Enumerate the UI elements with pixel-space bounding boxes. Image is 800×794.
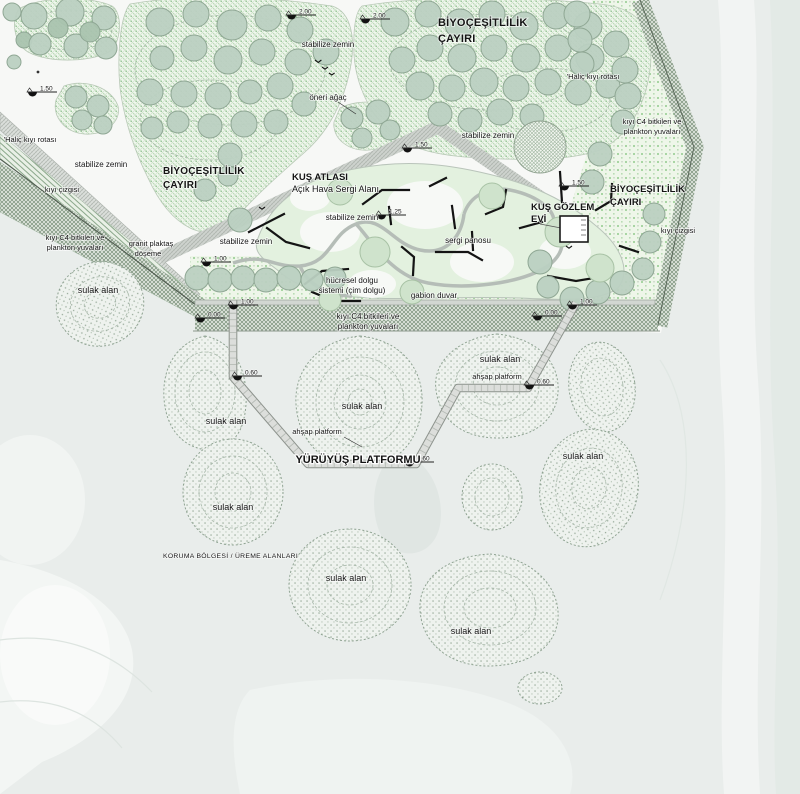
label-oneri-agac: öneri ağaç xyxy=(309,93,346,102)
label-kiyi-c4: kıyı C4 bitkileri ve xyxy=(623,117,682,126)
label-ahsap-platform: ahşap platform xyxy=(292,427,342,436)
elevation-value: 2.00 xyxy=(373,13,386,20)
wetland xyxy=(289,529,411,641)
label-kiyi-c4: plankton yuvaları xyxy=(338,322,398,331)
label-kiyi-cizgisi: kıyı çizgisi xyxy=(45,185,80,194)
elevation-value: 0.00 xyxy=(545,310,558,317)
label-sulak-alan: sulak alan xyxy=(213,502,254,512)
label-hucresel: hücresel dolgu xyxy=(326,276,378,285)
elevation-value: 1.50 xyxy=(415,142,428,149)
label-stabilize-zemin: stabilize zemin xyxy=(220,237,272,246)
label-kiyi-c4: kıyı C4 bitkileri ve xyxy=(337,312,400,321)
label-sulak-alan: sulak alan xyxy=(480,354,521,364)
elevation-value: 1.25 xyxy=(389,209,402,216)
label-stabilize-zemin: stabilize zemin xyxy=(302,40,354,49)
wetland xyxy=(183,439,283,545)
label-kus-gozlem: KUŞ GÖZLEM xyxy=(531,202,594,213)
elevation-value: 1.00 xyxy=(580,299,593,306)
label-meadow: ÇAYIRI xyxy=(438,33,475,45)
label-gabion: gabion duvar xyxy=(411,291,458,300)
label-stabilize-zemin: stabilize zemin xyxy=(462,131,514,140)
elevation-value: 0.60 xyxy=(245,370,258,377)
elevation-value: 1.00 xyxy=(241,299,254,306)
label-granit: döşeme xyxy=(135,249,162,258)
label-sergi-panosu: sergi panosu xyxy=(445,236,491,245)
label-kiyi-cizgisi: kıyı çizgisi xyxy=(661,226,696,235)
label-meadow: BİYOÇEŞİTLİLİK xyxy=(610,184,685,195)
label-meadow: ÇAYIRI xyxy=(163,180,197,191)
hatched-proposal-tree xyxy=(514,121,566,173)
label-kus-atlasi: KUŞ ATLASI xyxy=(292,172,348,183)
label-stabilize-zemin: stabilize zemin xyxy=(326,213,378,222)
label-sulak-alan: sulak alan xyxy=(342,401,383,411)
elevation-value: 1.50 xyxy=(40,86,53,93)
elevation-value: 0.60 xyxy=(537,379,550,386)
label-sulak-alan: sulak alan xyxy=(451,626,492,636)
label-kus-atlasi: Açık Hava Sergi Alanı xyxy=(292,184,379,194)
elevation-value: 1.00 xyxy=(214,256,227,263)
label-ahsap-platform: ahşap platform xyxy=(472,372,522,381)
label-sulak-alan: sulak alan xyxy=(206,416,247,426)
label-meadow: ÇAYIRI xyxy=(610,197,641,208)
label-halic-rotasi: 'Haliç kıyı rotası xyxy=(567,72,620,81)
label-halic-rotasi: 'Haliç kıyı rotası xyxy=(4,135,57,144)
label-kiyi-c4: plankton yuvaları xyxy=(624,127,681,136)
label-kus-gozlem: EVİ xyxy=(531,214,546,225)
site-plan-canvas: 1.50 2.00 2.00 1.50 1.50 1.25 1.00 1.00 … xyxy=(0,0,800,794)
label-sulak-alan: sulak alan xyxy=(78,285,119,295)
elevation-value: 0.00 xyxy=(208,312,221,319)
label-sulak-alan: sulak alan xyxy=(563,451,604,461)
label-hucresel: sistemi (çim dolgu) xyxy=(319,286,386,295)
label-kiyi-c4: plankton yuvaları xyxy=(47,243,104,252)
label-koruma-bolgesi: KORUMA BÖLGESİ / ÜREME ALANLARI xyxy=(163,551,298,560)
label-meadow: BİYOÇEŞİTLİLİK xyxy=(438,16,528,29)
label-meadow: BİYOÇEŞİTLİLİK xyxy=(163,164,245,177)
label-yuruyus-platformu: YÜRÜYÜŞ PLATFORMU xyxy=(295,453,420,466)
label-sulak-alan: sulak alan xyxy=(326,573,367,583)
elevation-value: 2.00 xyxy=(299,9,312,16)
label-stabilize-zemin: stabilize zemin xyxy=(75,160,127,169)
label-kiyi-c4: kıyı C4 bitkileri ve xyxy=(46,233,105,242)
elevation-value: 1.50 xyxy=(572,180,585,187)
label-granit: granit plaktaş xyxy=(129,239,174,248)
wetland xyxy=(518,672,562,704)
wetland xyxy=(462,464,522,530)
